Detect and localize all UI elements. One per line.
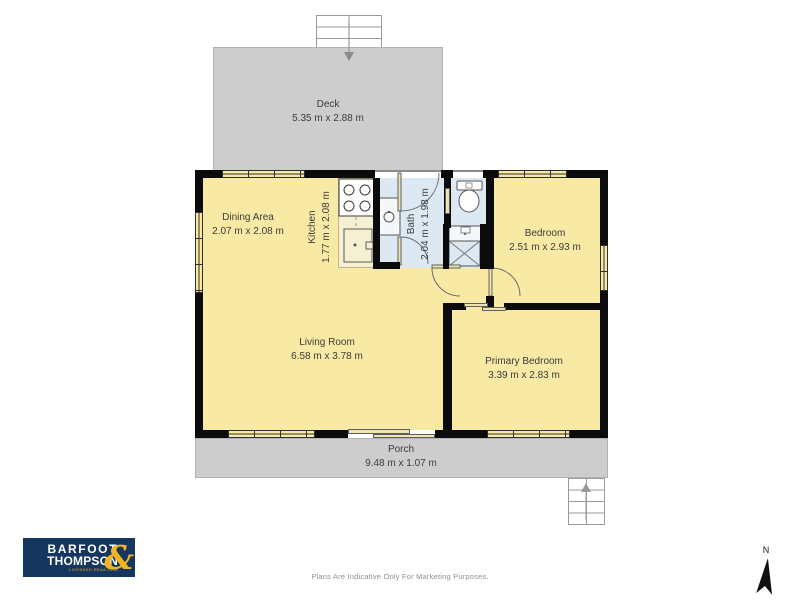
- porch-label: Porch 9.48 m x 1.07 m: [336, 443, 466, 471]
- wall: [195, 170, 203, 212]
- wall: [373, 262, 400, 269]
- shower-icon: [449, 241, 480, 266]
- kitchen-label: Kitchen 1.77 m x 2.08 m: [306, 177, 334, 277]
- stove-icon: [339, 179, 375, 216]
- window: [487, 430, 570, 438]
- room-name: Living Room: [257, 336, 397, 350]
- room-dims: 9.48 m x 1.07 m: [336, 457, 466, 471]
- room-dims: 2.51 m x 2.93 m: [485, 241, 605, 255]
- room-name: Deck: [263, 98, 393, 112]
- north-compass: N: [750, 545, 782, 597]
- dining-label: Dining Area 2.07 m x 2.08 m: [188, 211, 308, 239]
- wall: [315, 430, 348, 438]
- kitchen-sink-icon: [344, 229, 373, 262]
- room-dims: 2.07 m x 2.08 m: [188, 225, 308, 239]
- room-dims: 1.77 m x 2.08 m: [320, 177, 334, 277]
- vanity-icon: [379, 198, 400, 235]
- room-dims: 3.39 m x 2.83 m: [444, 369, 604, 383]
- room-name: Porch: [336, 443, 466, 457]
- window: [498, 170, 567, 178]
- room-name: Kitchen: [306, 177, 320, 277]
- living-slider-door: [373, 434, 435, 438]
- deck-label: Deck 5.35 m x 2.88 m: [263, 98, 393, 126]
- room-name: Bath: [405, 174, 419, 274]
- porch-stairs-arrow-icon: [581, 483, 591, 520]
- room-name: Bedroom: [485, 227, 605, 241]
- room-dims: 2.04 m x 1.98 m: [419, 174, 433, 274]
- wall: [373, 178, 380, 269]
- laundry-tub-icon: [449, 226, 484, 241]
- wall: [453, 170, 483, 172]
- living-label: Living Room 6.58 m x 3.78 m: [257, 336, 397, 364]
- north-arrow-icon: [750, 555, 782, 597]
- bedroom-door: [489, 268, 520, 296]
- toilet-icon: [457, 181, 482, 212]
- wall: [195, 293, 203, 438]
- primary-slider-door: [482, 307, 506, 311]
- primary-label: Primary Bedroom 3.39 m x 2.83 m: [444, 355, 604, 383]
- window: [222, 170, 305, 178]
- plan-symbols-layer: [0, 0, 800, 600]
- wall: [504, 303, 608, 310]
- bedroom-label: Bedroom 2.51 m x 2.93 m: [485, 227, 605, 255]
- wc-pocket-door: [445, 188, 450, 214]
- wall: [375, 170, 441, 172]
- room-name: Dining Area: [188, 211, 308, 225]
- window: [228, 430, 315, 438]
- disclaimer-text: Plans Are Indicative Only For Marketing …: [0, 572, 800, 581]
- wall: [443, 224, 449, 269]
- deck-stairs-arrow-icon: [344, 20, 354, 61]
- bath-label: Bath 2.04 m x 1.98 m: [405, 174, 433, 274]
- room-dims: 5.35 m x 2.88 m: [263, 112, 393, 126]
- room-name: Primary Bedroom: [444, 355, 604, 369]
- room-dims: 6.58 m x 3.78 m: [257, 350, 397, 364]
- hall-door: [432, 265, 460, 296]
- floor-plan-page: Deck 5.35 m x 2.88 m Dining Area 2.07 m …: [0, 0, 800, 600]
- north-label: N: [750, 545, 782, 555]
